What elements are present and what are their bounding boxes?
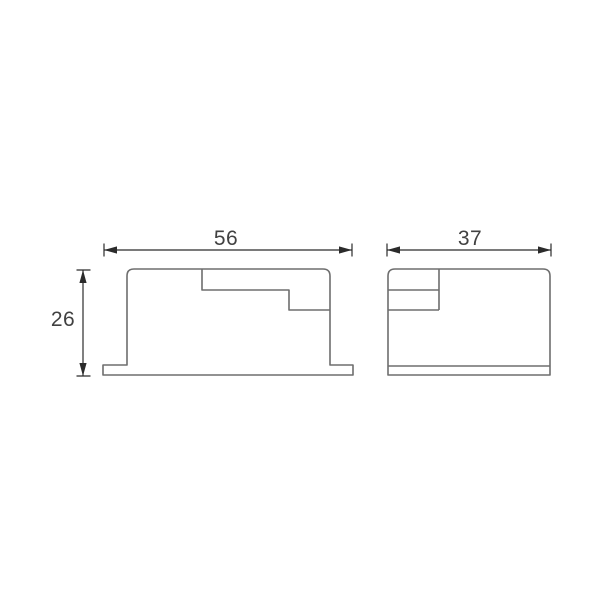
front-width-label: 56 — [214, 227, 238, 250]
dimension-labels: 56 26 37 — [51, 227, 482, 331]
arrow-right-icon — [538, 246, 551, 253]
arrow-left-icon — [387, 246, 400, 253]
front-view — [103, 269, 353, 375]
outline-layer — [103, 269, 550, 375]
dimension-layer: 56 26 37 — [51, 227, 551, 376]
side-view-outline — [388, 269, 550, 375]
dimension-arrowheads — [79, 246, 551, 376]
arrow-left-icon — [104, 246, 117, 253]
arrow-up-icon — [79, 270, 86, 283]
drawing-canvas: 56 26 37 — [0, 0, 600, 600]
front-height-label: 26 — [51, 308, 75, 331]
front-view-outline — [103, 269, 353, 375]
front-view-step-lines — [202, 269, 330, 310]
side-width-label: 37 — [458, 227, 482, 250]
side-view — [388, 269, 550, 375]
dimension-front-height — [77, 270, 91, 376]
arrow-down-icon — [79, 363, 86, 376]
technical-drawing: 56 26 37 — [0, 0, 600, 600]
arrow-right-icon — [339, 246, 352, 253]
side-view-step-lines — [388, 269, 439, 310]
